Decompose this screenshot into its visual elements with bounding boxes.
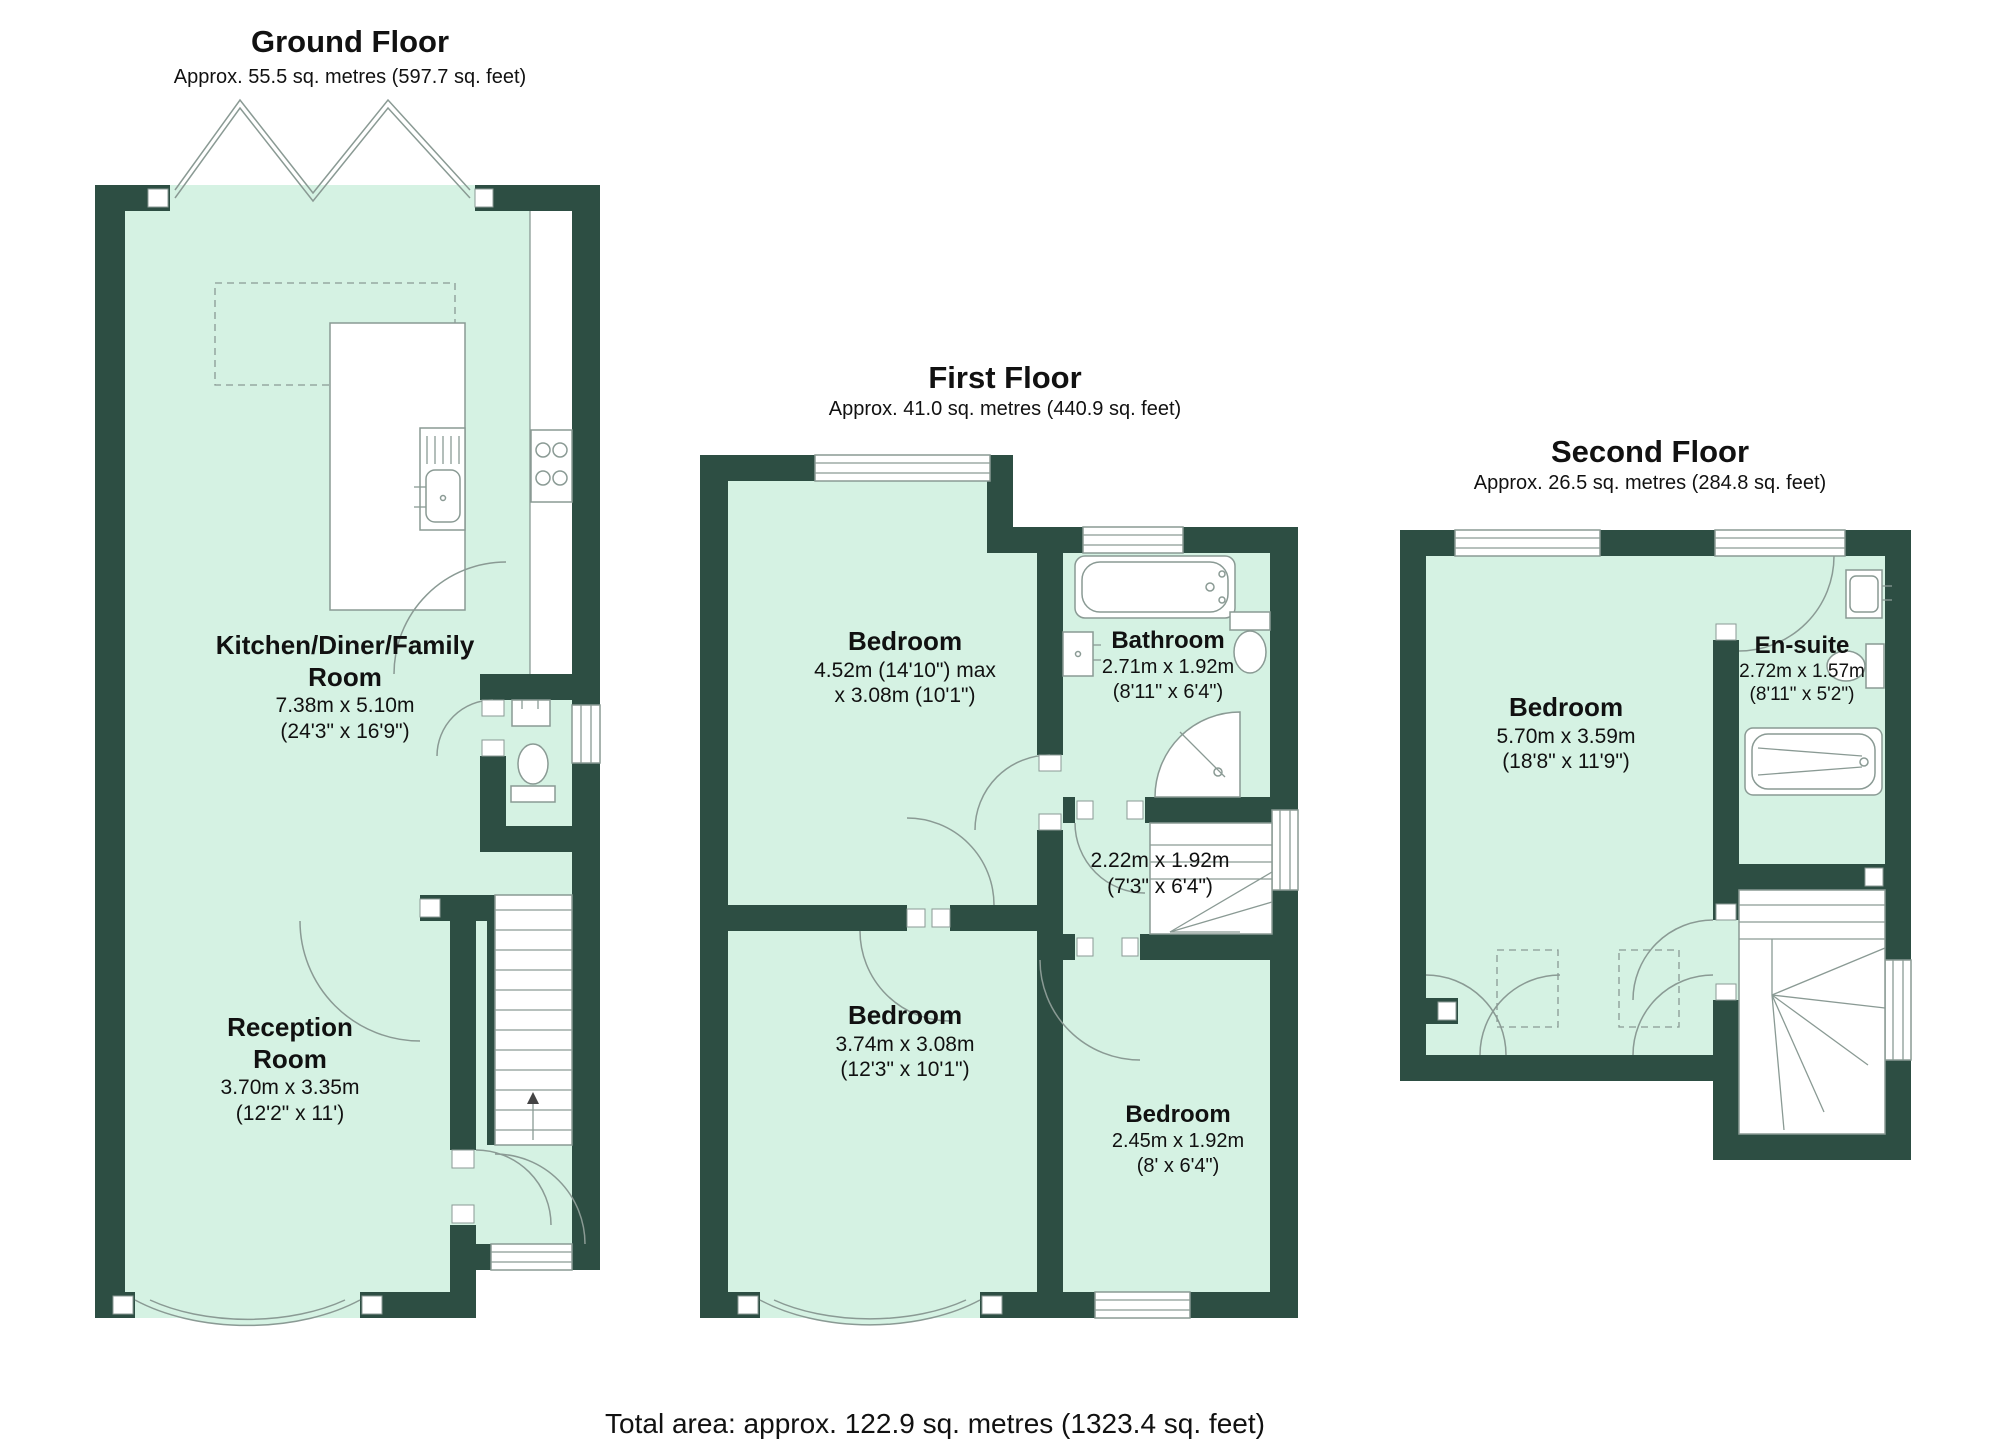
room-dims: 2.22m x 1.92m [1091, 848, 1230, 874]
room-label-kitchen: Kitchen/Diner/Family Room 7.38m x 5.10m … [216, 630, 475, 745]
first-floor-subtitle: Approx. 41.0 sq. metres (440.9 sq. feet) [829, 398, 1181, 421]
room-name: En-suite [1739, 631, 1865, 660]
second-floor-subtitle: Approx. 26.5 sq. metres (284.8 sq. feet) [1474, 472, 1826, 495]
room-label-bedroom1: Bedroom 4.52m (14'10") max x 3.08m (10'1… [814, 626, 996, 709]
room-label-bedroom4: Bedroom 5.70m x 3.59m (18'8" x 11'9") [1497, 692, 1636, 775]
room-dims: 7.38m x 5.10m [216, 693, 475, 719]
room-name: Room [216, 662, 475, 694]
room-label-bathroom: Bathroom 2.71m x 1.92m (8'11" x 6'4") [1102, 626, 1234, 704]
ground-stairs [495, 895, 572, 1145]
room-dims: (8'11" x 5'2") [1739, 683, 1865, 706]
room-dims: x 3.08m (10'1") [814, 683, 996, 709]
room-name: Bedroom [836, 1000, 975, 1032]
room-dims: (18'8" x 11'9") [1497, 749, 1636, 775]
room-dims: (12'2" x 11') [221, 1101, 360, 1127]
room-label-ensuite: En-suite 2.72m x 1.57m (8'11" x 5'2") [1739, 631, 1865, 707]
room-label-bedroom2: Bedroom 3.74m x 3.08m (12'3" x 10'1") [836, 1000, 975, 1083]
room-label-reception: Reception Room 3.70m x 3.35m (12'2" x 11… [221, 1012, 360, 1127]
room-dims: (8' x 6'4") [1112, 1154, 1244, 1178]
room-dims: 2.71m x 1.92m [1102, 655, 1234, 679]
room-dims: 5.70m x 3.59m [1497, 724, 1636, 750]
room-label-bedroom3: Bedroom 2.45m x 1.92m (8' x 6'4") [1112, 1100, 1244, 1178]
room-dims: 2.72m x 1.57m [1739, 660, 1865, 683]
basin-icon [512, 700, 550, 726]
second-floor-title: Second Floor [1551, 434, 1749, 470]
toilet-icon [518, 744, 548, 784]
second-floor-plan [1400, 530, 1911, 1160]
room-name: Bedroom [1497, 692, 1636, 724]
bath-icon [1745, 728, 1882, 795]
basin-icon [1063, 632, 1093, 676]
room-dims: (8'11" x 6'4") [1102, 680, 1234, 704]
second-stairs [1739, 890, 1885, 1134]
room-name: Bedroom [814, 626, 996, 658]
ground-floor-subtitle: Approx. 55.5 sq. metres (597.7 sq. feet) [174, 66, 526, 89]
room-name: Room [221, 1044, 360, 1076]
toilet-cistern [1230, 612, 1270, 630]
hob-icon [531, 430, 572, 502]
room-dims: 3.74m x 3.08m [836, 1032, 975, 1058]
front-door-threshold [491, 1244, 572, 1270]
bath-icon [1075, 556, 1235, 618]
total-area-text: Total area: approx. 122.9 sq. metres (13… [605, 1408, 1265, 1440]
room-name: Kitchen/Diner/Family [216, 630, 475, 662]
room-dims: (24'3" x 16'9") [216, 719, 475, 745]
room-dims: 3.70m x 3.35m [221, 1075, 360, 1101]
room-dims: 4.52m (14'10") max [814, 658, 996, 684]
room-name: Reception [221, 1012, 360, 1044]
room-name: Bedroom [1112, 1100, 1244, 1129]
room-dims: (7'3" x 6'4") [1091, 874, 1230, 900]
wc-window [572, 705, 600, 763]
first-floor-title: First Floor [928, 360, 1081, 396]
room-dims: 2.45m x 1.92m [1112, 1129, 1244, 1153]
toilet-icon [1234, 631, 1266, 673]
kitchen-counter [530, 211, 572, 674]
ground-floor-title: Ground Floor [251, 24, 449, 60]
room-label-landing: 2.22m x 1.92m (7'3" x 6'4") [1091, 848, 1230, 899]
floorplan-page: Ground Floor Approx. 55.5 sq. metres (59… [0, 0, 2000, 1455]
room-dims: (12'3" x 10'1") [836, 1057, 975, 1083]
room-name: Bathroom [1102, 626, 1234, 655]
